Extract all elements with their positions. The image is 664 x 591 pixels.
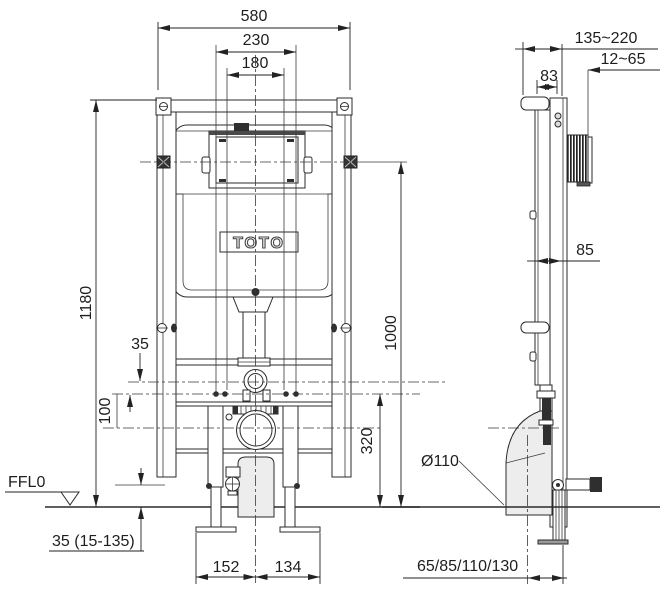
flush-pipe-assembly bbox=[233, 288, 273, 401]
frame-top-bar bbox=[157, 100, 351, 112]
dim-outlet-height-label: 320 bbox=[359, 428, 376, 455]
top-wall-bracket bbox=[521, 97, 549, 110]
toto-logo: TOTO bbox=[220, 232, 298, 252]
datum-triangle bbox=[61, 492, 79, 505]
drain-pipe bbox=[238, 457, 274, 517]
dim-frame-height-label: 1180 bbox=[78, 286, 95, 321]
dim-depth-range-label: 135~220 bbox=[575, 30, 638, 47]
drain-diameter-label: Ø110 bbox=[421, 453, 459, 470]
dim-pipe-spacing-label: 180 bbox=[242, 55, 269, 72]
panel-clip-right bbox=[304, 157, 312, 173]
side-view: 135~220 12~65 83 85 Ø110 65/85/110/130 bbox=[382, 30, 660, 584]
flush-plate-block bbox=[568, 135, 592, 186]
dim-bracket-height-label: 1000 bbox=[383, 315, 400, 351]
dim-foot-right-label: 134 bbox=[275, 559, 302, 576]
dim-frame-depth-label: 85 bbox=[576, 242, 594, 259]
dim-foot-left-label: 152 bbox=[213, 559, 240, 576]
dim-bolt-spacing-label: 230 bbox=[243, 32, 270, 49]
foot-plate-right bbox=[280, 527, 320, 532]
front-view: TOTO bbox=[5, 8, 445, 584]
dim-plate-depth-label: 12~65 bbox=[601, 51, 646, 68]
foot-plate-left bbox=[196, 527, 236, 532]
drain-assembly bbox=[226, 406, 279, 517]
dim-overall-width-label: 580 bbox=[241, 8, 268, 25]
dim-bolt-height-label: 100 bbox=[97, 398, 114, 425]
dim-outlet-offset-label: 65/85/110/130 bbox=[417, 558, 518, 575]
access-panel bbox=[202, 123, 312, 188]
drawing-canvas: TOTO bbox=[0, 0, 664, 591]
dim-floor-adjust-label: 35 (15-135) bbox=[52, 533, 135, 550]
dim-flushpipe-offset-label: 35 bbox=[131, 336, 149, 353]
side-rail bbox=[550, 98, 567, 527]
cistern-side bbox=[535, 110, 550, 385]
technical-drawing: TOTO bbox=[0, 0, 664, 591]
mid-wall-bracket bbox=[521, 322, 549, 333]
panel-clip-left bbox=[202, 157, 210, 173]
dim-bracket-depth-label: 83 bbox=[540, 68, 558, 85]
floor-level-label: FFL0 bbox=[8, 474, 45, 491]
stop-valve bbox=[226, 467, 240, 477]
toto-logo-text: TOTO bbox=[233, 235, 285, 252]
panel-knob bbox=[234, 123, 249, 131]
